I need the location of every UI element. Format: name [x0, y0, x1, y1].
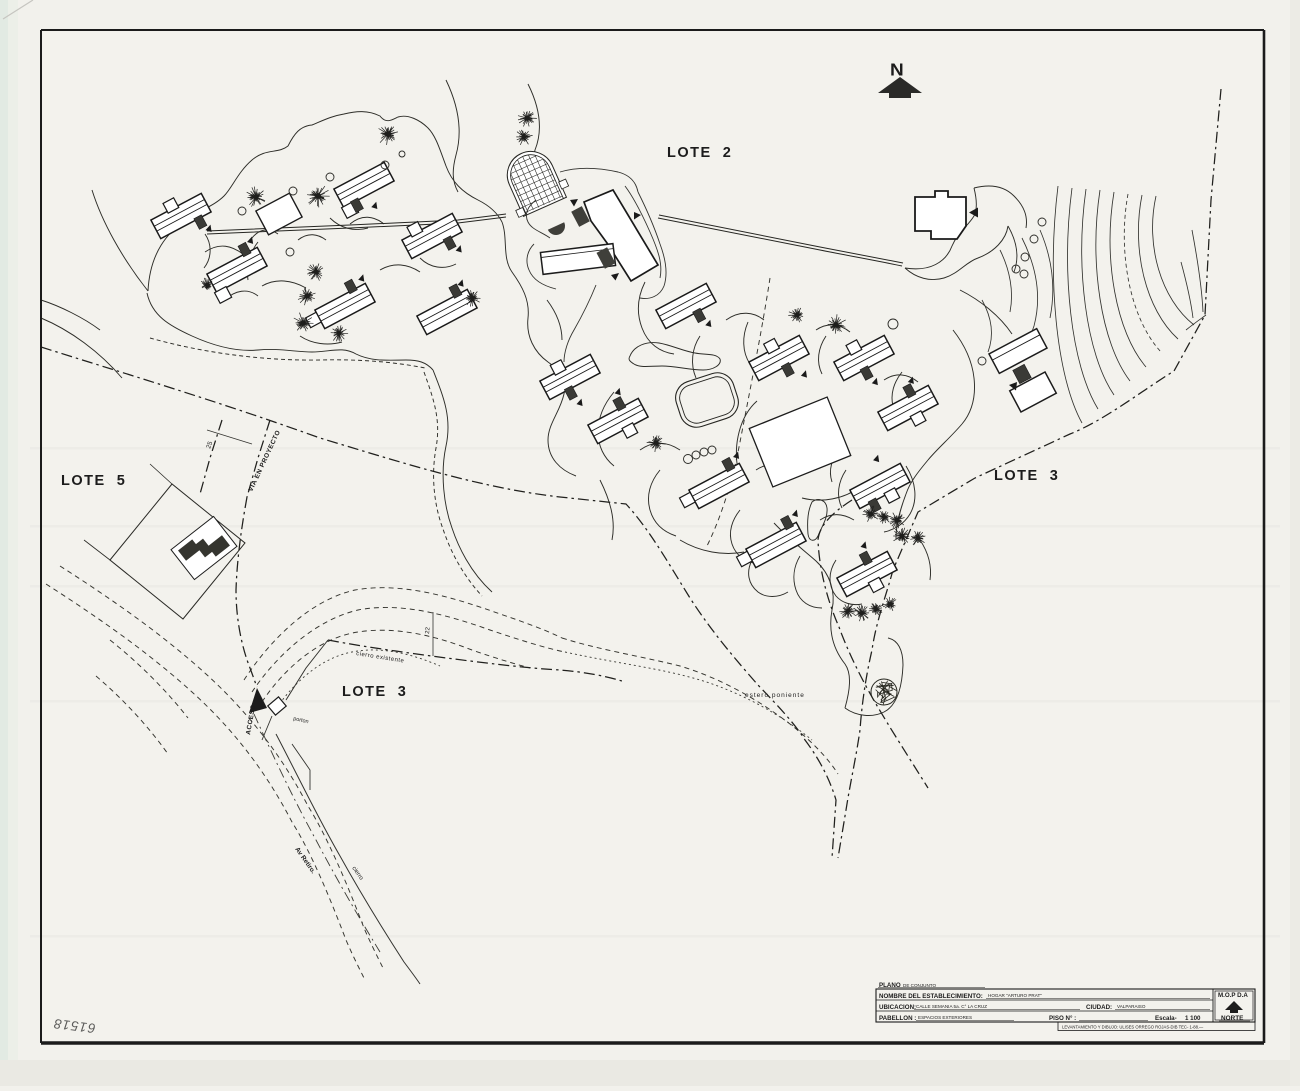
svg-text:N: N — [890, 59, 904, 79]
svg-text:22: 22 — [425, 626, 432, 634]
svg-text:CALLE SEMANIA 5a. C° LA C: CALLE SEMANIA 5a. C° LA CRUZ — [916, 1004, 987, 1009]
svg-text:estero poniente: estero poniente — [745, 692, 805, 699]
svg-text:ESPACIOS EXTERIORES: ESPACIOS EXTERIORES — [918, 1015, 972, 1020]
svg-text:LOTE 2: LOTE 2 — [667, 145, 732, 161]
svg-text:Escala-: Escala- — [1155, 1015, 1177, 1022]
svg-text:NOMBRE DEL ESTABLECIMIENTO:: NOMBRE DEL ESTABLECIMIENTO: — [879, 993, 983, 1000]
svg-text:VALPARAISO: VALPARAISO — [1117, 1004, 1146, 1009]
svg-text:PISO N° :: PISO N° : — [1049, 1015, 1076, 1022]
svg-text:LOTE 5: LOTE 5 — [61, 473, 126, 489]
svg-text:HOGAR "ARTURO PRAT": HOGAR "ARTURO PRAT" — [988, 993, 1042, 998]
svg-text:CIUDAD:: CIUDAD: — [1086, 1004, 1112, 1011]
svg-text:1 100: 1 100 — [1185, 1015, 1201, 1022]
svg-text:LEVANTAMIENTO Y DIBUJO: UL: LEVANTAMIENTO Y DIBUJO: ULISES ORREGO RO… — [1062, 1025, 1204, 1030]
svg-text:M.O.P D.A: M.O.P D.A — [1218, 992, 1248, 999]
svg-text:LOTE 3: LOTE 3 — [342, 684, 407, 700]
svg-text:UBICACION:: UBICACION: — [879, 1004, 916, 1011]
svg-text:PLANO: PLANO — [879, 982, 901, 989]
svg-text:DE CONJUNTO: DE CONJUNTO — [903, 983, 937, 988]
svg-text:PABELLON :: PABELLON : — [879, 1015, 916, 1022]
svg-text:LOTE 3: LOTE 3 — [994, 468, 1059, 484]
